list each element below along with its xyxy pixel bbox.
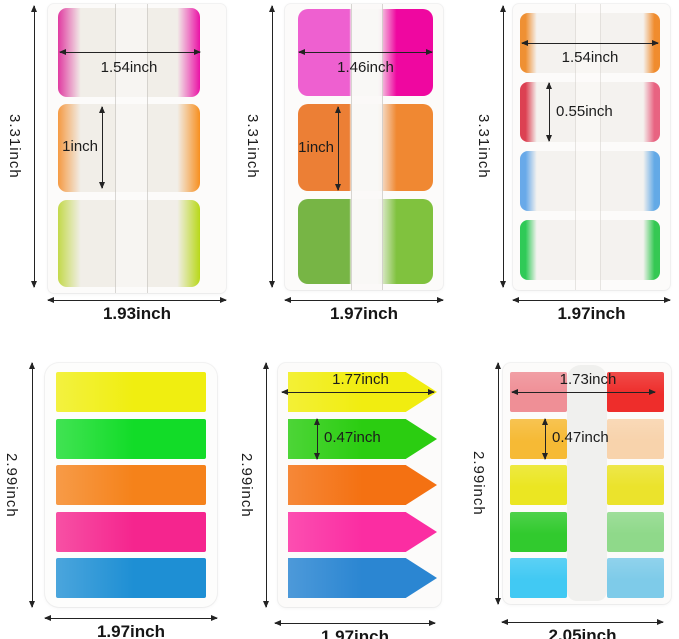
flag-card: 1.77inch 0.47inch [278, 363, 441, 607]
flag-card: 1.73inch 0.47inch [503, 363, 671, 604]
flag-strip [56, 512, 206, 552]
backing-spine [351, 4, 383, 290]
dimension-arrow-horizontal [512, 392, 655, 393]
side-height-label: 2.99inch [238, 453, 255, 518]
dimension-arrow-horizontal [522, 43, 658, 44]
mini-tab [510, 558, 567, 598]
product-dimension-diagram: 3.31inch 1.54inch 1inch 1.93inch 3.31inc… [0, 0, 679, 639]
bottom-width-label: 1.97inch [285, 304, 443, 324]
panel-5arrow: 2.99inch 1.77inch 0.47inch 1.97inch [230, 320, 460, 639]
dimension-width-label: 1.77inch [288, 371, 433, 389]
mini-tab [607, 512, 664, 552]
panel-2x5-minitabs: 2.99inch 1.73inch 0.47inch 2.05inch [460, 320, 679, 639]
dimension-arrow-horizontal [275, 623, 435, 624]
dimension-width-label: 1.46inch [298, 59, 433, 77]
dimension-arrow-vertical [317, 419, 318, 459]
dimension-arrow-vertical [34, 6, 35, 287]
mini-tab [607, 419, 664, 459]
dimension-height-label: 0.55inch [556, 103, 613, 121]
dimension-arrow-horizontal [282, 392, 434, 393]
dimension-arrow-horizontal [285, 300, 443, 301]
backing-spine [567, 365, 607, 601]
dimension-arrow-vertical [338, 107, 339, 190]
flag-strip [56, 419, 206, 459]
dimension-arrow-vertical [503, 6, 504, 287]
dimension-arrow-horizontal [45, 618, 217, 619]
dimension-arrow-vertical [498, 363, 499, 604]
arrow-flag [288, 558, 437, 598]
side-height-label: 3.31inch [244, 114, 261, 179]
tab-pad: 1.46inch 1inch [285, 4, 443, 290]
panel-4tab-edge: 3.31inch 1.54inch 0.55inch 1.97inch [460, 0, 679, 320]
panel-5strip: 2.99inch 1.97inch [0, 320, 230, 639]
dimension-width-label: 1.73inch [528, 371, 648, 389]
backing-spine [115, 4, 148, 293]
mini-tab [607, 465, 664, 505]
flag-strip [56, 372, 206, 412]
dimension-arrow-horizontal [48, 300, 226, 301]
arrow-flag [288, 465, 437, 505]
panel-3tab-edge: 3.31inch 1.54inch 1inch 1.93inch [0, 0, 230, 320]
bottom-width-label: 1.97inch [275, 627, 435, 639]
side-height-label: 3.31inch [6, 114, 23, 179]
bottom-width-label: 1.93inch [48, 304, 226, 324]
dimension-height-label: 1inch [291, 139, 334, 157]
dimension-height-label: 0.47inch [552, 429, 609, 447]
backing-spine [575, 4, 601, 290]
flag-strip [56, 465, 206, 505]
bottom-width-label: 2.05inch [502, 626, 663, 639]
tab-pad: 1.54inch 1inch [48, 4, 226, 293]
bottom-width-label: 1.97inch [513, 304, 670, 324]
dimension-width-label: 1.54inch [520, 49, 660, 67]
flag-strip [56, 558, 206, 598]
bottom-width-label: 1.97inch [45, 622, 217, 639]
dimension-arrow-horizontal [299, 52, 432, 53]
panel-3tab-solid: 3.31inch 1.46inch 1inch 1.97inch [230, 0, 460, 320]
dimension-arrow-horizontal [513, 300, 670, 301]
dimension-arrow-vertical [545, 419, 546, 459]
dimension-arrow-vertical [266, 363, 267, 607]
side-height-label: 3.31inch [475, 114, 492, 179]
dimension-arrow-horizontal [60, 52, 200, 53]
flag-card [45, 363, 217, 607]
dimension-height-label: 0.47inch [324, 429, 381, 447]
dimension-arrow-vertical [272, 6, 273, 287]
side-height-label: 2.99inch [470, 451, 487, 516]
dimension-width-label: 1.54inch [58, 59, 200, 77]
dimension-height-label: 1inch [56, 138, 98, 156]
side-height-label: 2.99inch [3, 453, 20, 518]
tab-pad: 1.54inch 0.55inch [513, 4, 670, 290]
mini-tab [607, 558, 664, 598]
dimension-arrow-horizontal [502, 622, 663, 623]
mini-tab [510, 512, 567, 552]
dimension-arrow-vertical [102, 107, 103, 188]
dimension-arrow-vertical [32, 363, 33, 607]
arrow-flag [288, 512, 437, 552]
mini-tab [510, 465, 567, 505]
dimension-arrow-vertical [549, 83, 550, 141]
